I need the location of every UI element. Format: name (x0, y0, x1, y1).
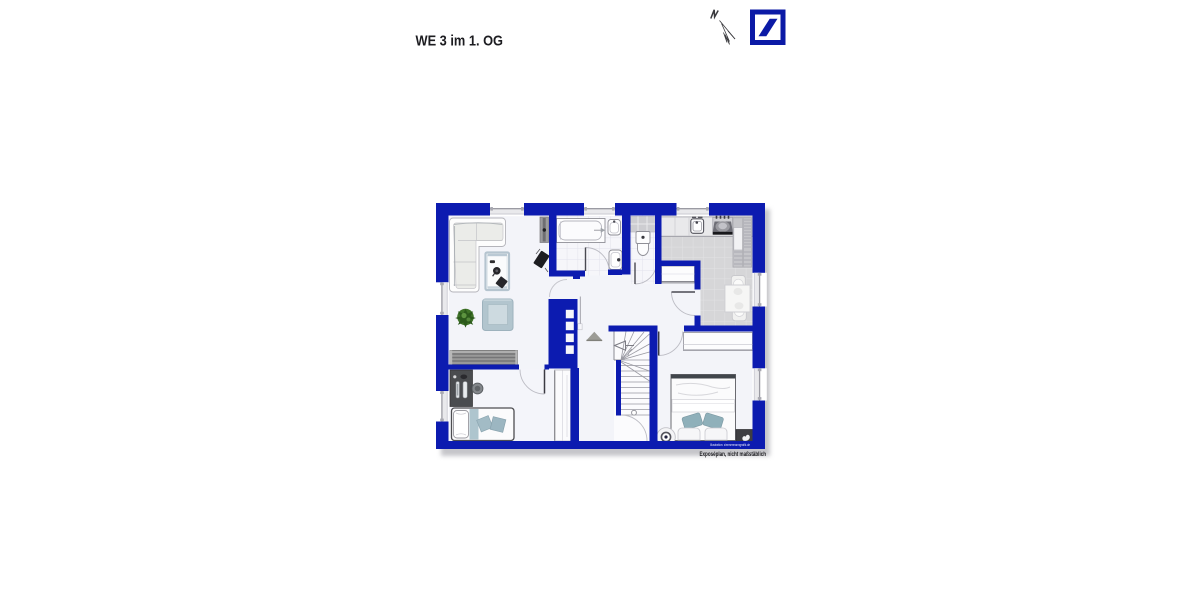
svg-text:Illustration: zimmermanngrafik: Illustration: zimmermanngrafik.de (710, 443, 750, 447)
svg-text:Exposéplan, nicht maßstäblich: Exposéplan, nicht maßstäblich (700, 451, 767, 458)
svg-text:WE 3 im 1. OG: WE 3 im 1. OG (416, 33, 504, 50)
